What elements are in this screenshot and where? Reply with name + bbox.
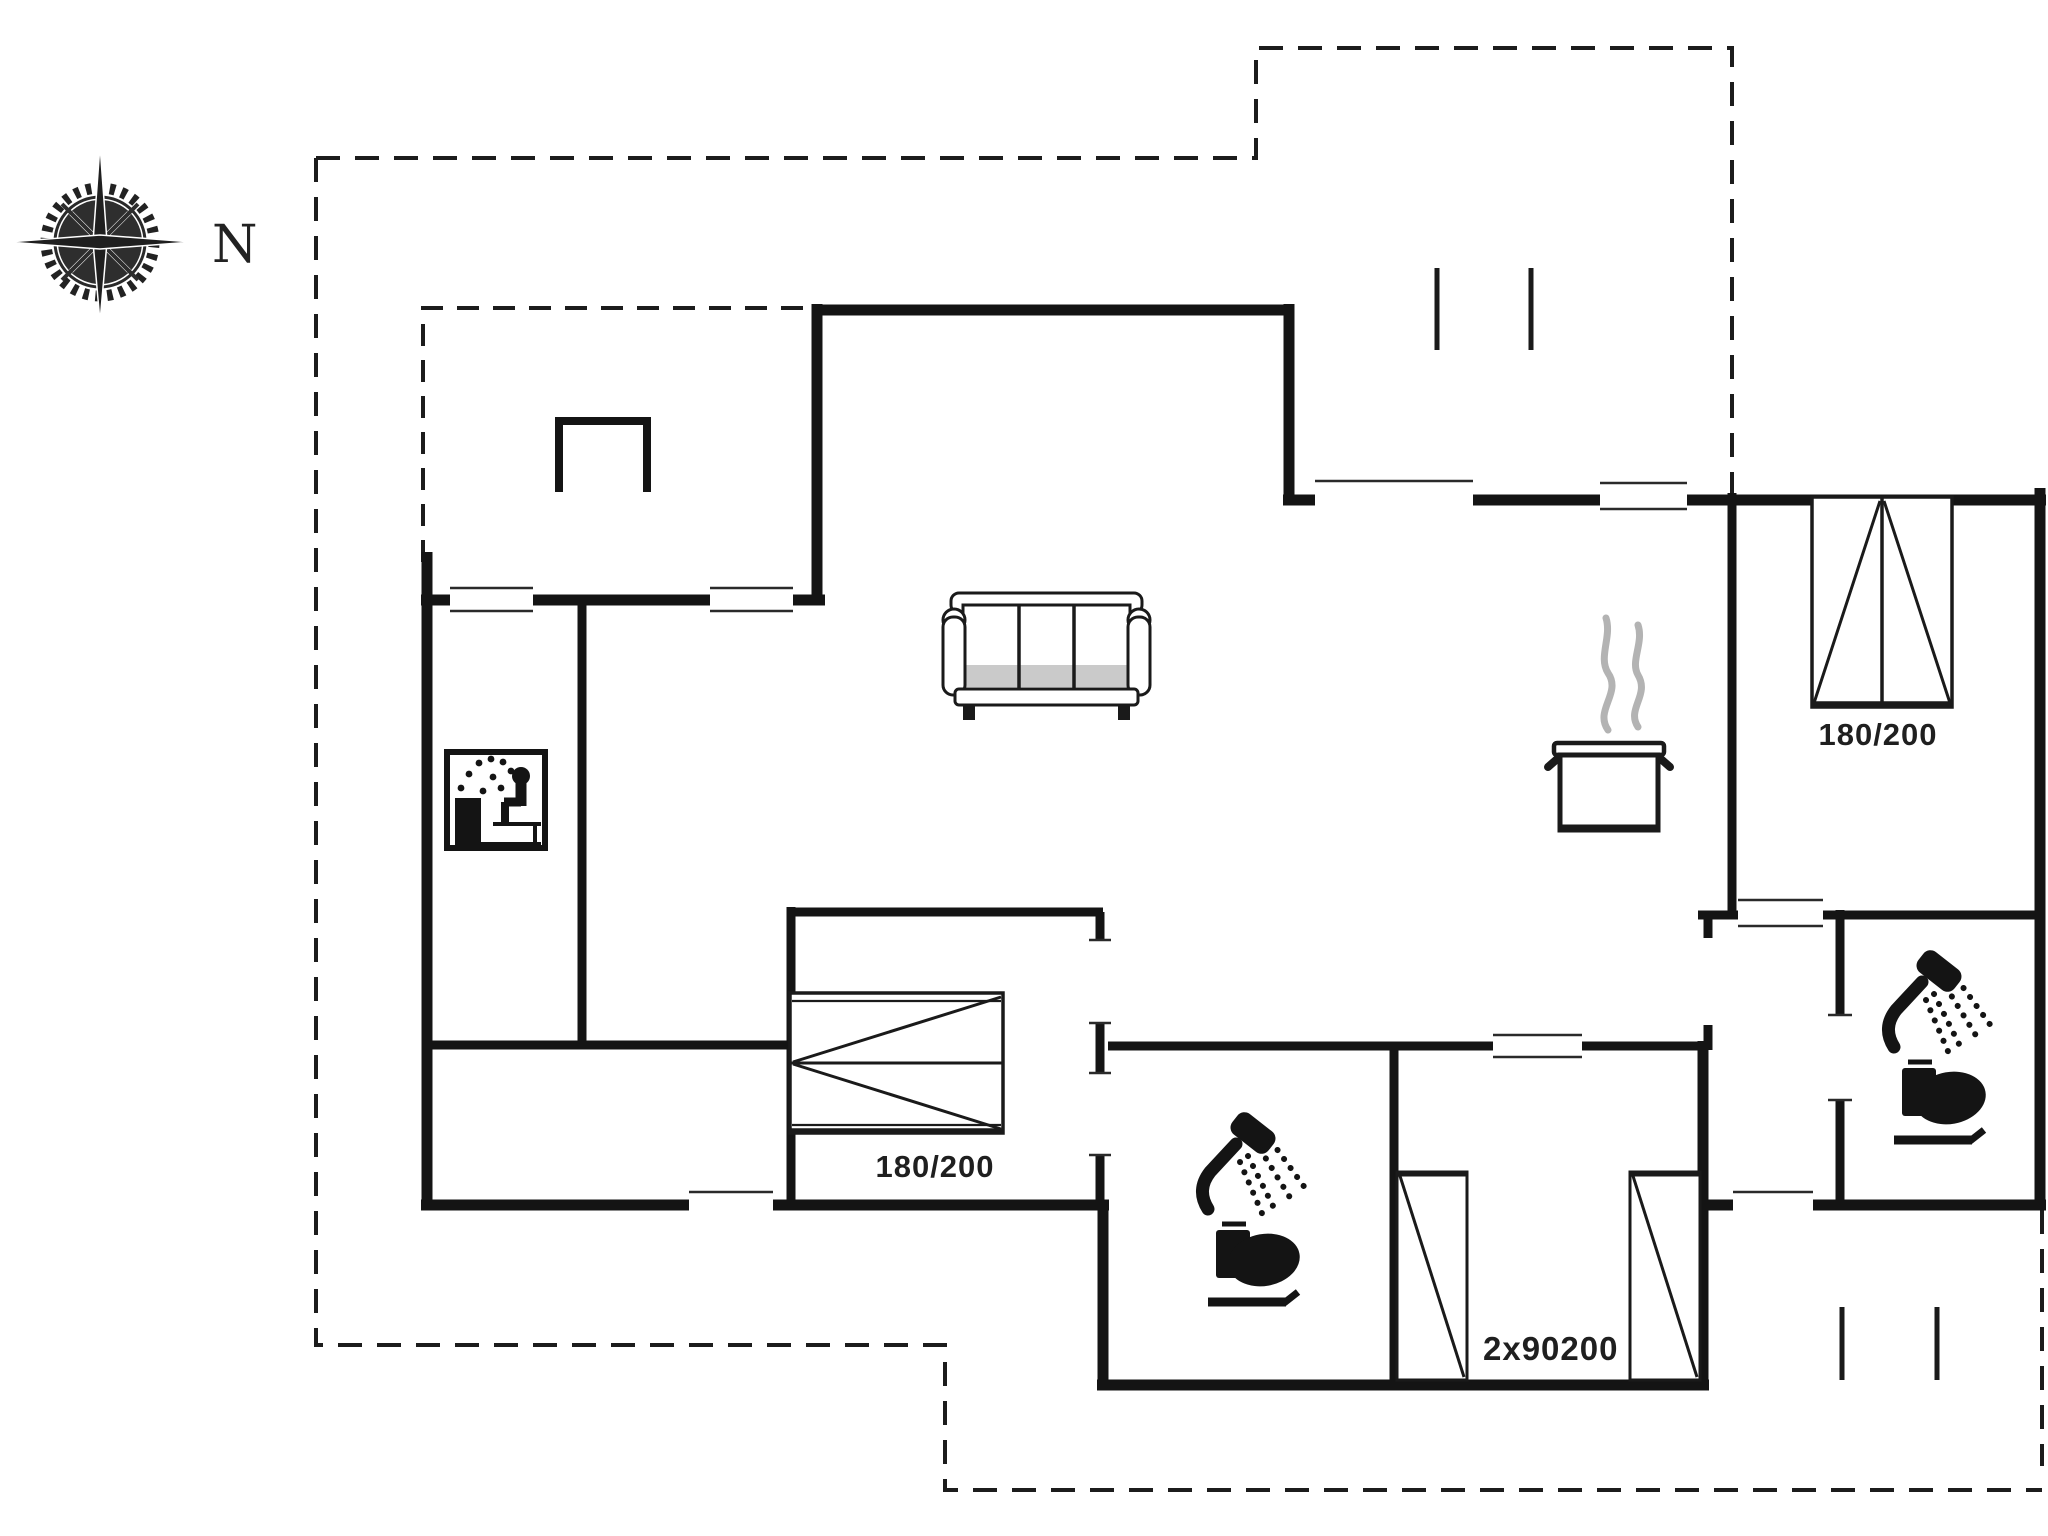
terrace-boundary-left-bottom [316, 158, 2042, 1490]
sauna-pictogram-icon [447, 752, 545, 848]
toilet-with-shower-icon-middle-bathroom [1202, 1109, 1308, 1303]
annex-boundary-dashed [423, 308, 813, 562]
window-and-threshold-lines [450, 481, 1852, 1192]
sofa-left-arm [943, 617, 965, 695]
single-bed-icon-right [1630, 1172, 1700, 1380]
steaming-pot-icon [1548, 618, 1670, 830]
compass-rose-icon [8, 145, 192, 322]
three-seat-sofa-icon [943, 593, 1150, 720]
pot-body [1560, 755, 1658, 830]
exterior-walls [421, 304, 2046, 1390]
compass-east-west-needle [8, 235, 192, 249]
floor-plan-page: N [0, 0, 2048, 1536]
sofa-left-leg [963, 705, 975, 720]
sauna-stove [455, 798, 481, 842]
double-bed-icon-top-right [1812, 497, 1952, 707]
toilet-with-shower-icon-right-bathroom [1888, 947, 1994, 1141]
sofa-front-rail [955, 689, 1138, 705]
sofa-right-leg [1118, 705, 1130, 720]
pot-steam [1604, 618, 1642, 730]
annex-dashed-edge [423, 308, 813, 562]
bed-size-label-top-right: 180/200 [1818, 717, 1937, 752]
u-shaped-structure-icon [559, 421, 647, 492]
double-bed-icon-middle [790, 993, 1003, 1133]
terrace-boundary-dashed [316, 48, 2042, 1490]
terrace-boundary-top [316, 48, 1732, 493]
bed-size-label-middle: 180/200 [875, 1149, 994, 1184]
bunk-bed-size-label: 2x90200 [1483, 1330, 1618, 1367]
compass-north-south-needle [93, 145, 107, 322]
single-bed-icon-left [1397, 1172, 1467, 1380]
sofa-right-arm [1128, 617, 1150, 695]
sofa-seat-shading [965, 665, 1128, 687]
floor-plan-drawing: N [0, 0, 2048, 1536]
north-label: N [212, 215, 258, 275]
